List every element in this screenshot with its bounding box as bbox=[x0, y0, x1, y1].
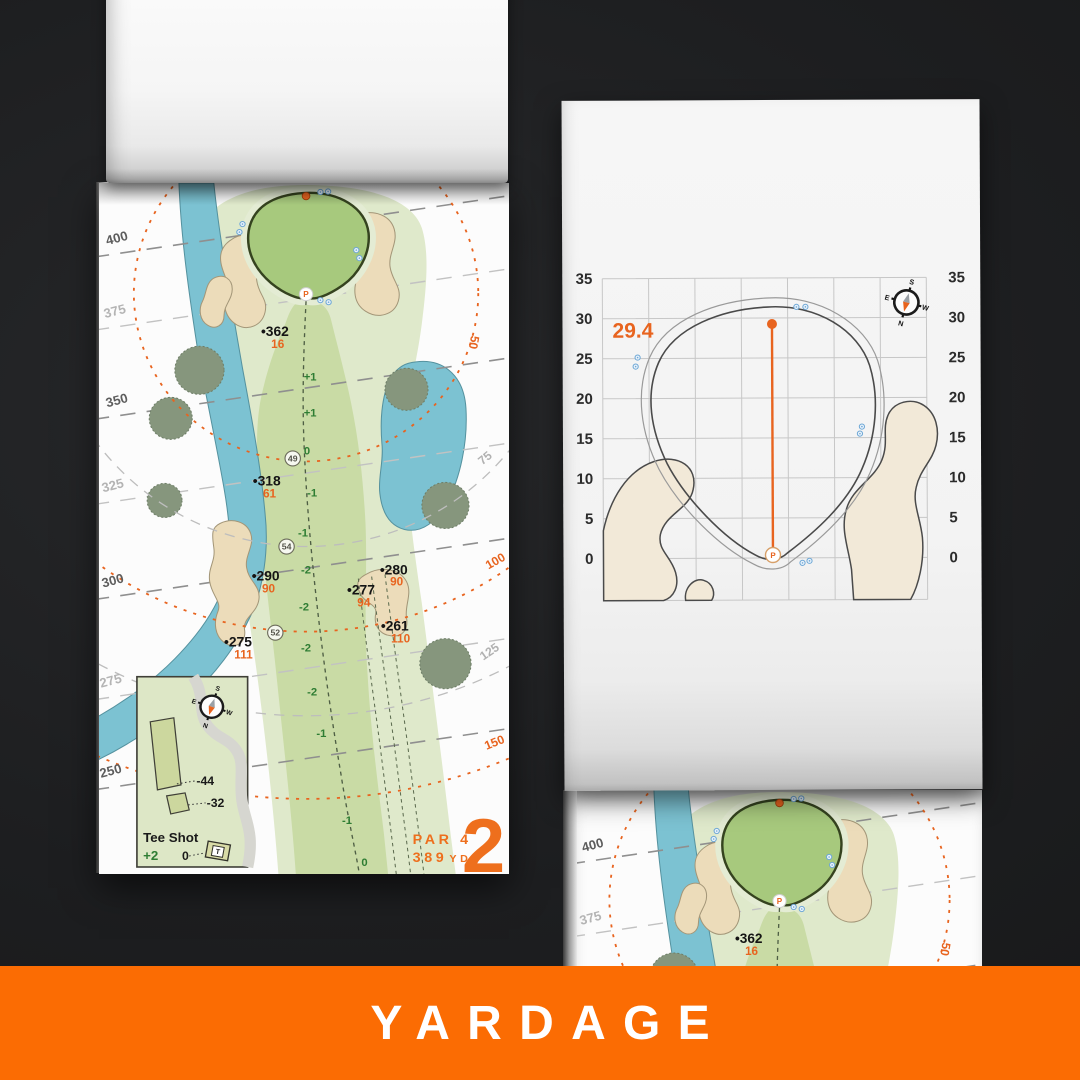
arc-75: 75 bbox=[475, 448, 495, 467]
svg-text:15: 15 bbox=[576, 431, 593, 448]
svg-text:35: 35 bbox=[948, 269, 965, 286]
yardage-book-left: S N W E bbox=[96, 0, 510, 878]
tee-325: 325 bbox=[100, 475, 125, 495]
carry-290: •290 bbox=[252, 569, 280, 584]
tee-250: 250 bbox=[99, 761, 123, 781]
green-chart-svg: P 29.4 35 30 25 20 15 10 bbox=[561, 99, 982, 791]
arc-50: 50 bbox=[466, 335, 482, 351]
green-page-sprinklers bbox=[633, 304, 865, 566]
togreen-90b: 90 bbox=[390, 576, 403, 589]
svg-text:0: 0 bbox=[585, 551, 593, 568]
svg-text:0: 0 bbox=[949, 549, 957, 566]
hole-map-page[interactable]: S N W E bbox=[99, 183, 509, 874]
svg-text:-2: -2 bbox=[299, 602, 309, 614]
carry-362: •362 bbox=[261, 324, 289, 339]
scene: S N W E bbox=[0, 0, 1080, 1080]
tee-375: 375 bbox=[102, 301, 127, 321]
togreen-111: 111 bbox=[234, 649, 253, 662]
tee-275: 275 bbox=[99, 671, 123, 691]
flipped-page-back[interactable] bbox=[106, 0, 508, 183]
svg-text:20: 20 bbox=[576, 391, 593, 408]
axis-left: 35 30 25 20 15 10 5 0 bbox=[576, 271, 594, 568]
svg-text:25: 25 bbox=[576, 351, 593, 368]
inset-title: Tee Shot bbox=[143, 830, 199, 845]
togreen-16: 16 bbox=[271, 338, 285, 351]
arc-125: 125 bbox=[477, 640, 502, 663]
next-hole-map-page[interactable] bbox=[577, 790, 982, 968]
yardage-book-right: P 29.4 35 30 25 20 15 10 bbox=[561, 96, 983, 970]
svg-text:-2: -2 bbox=[307, 687, 317, 699]
svg-text:20: 20 bbox=[949, 389, 966, 406]
svg-text:5: 5 bbox=[585, 511, 593, 528]
width-54: 54 bbox=[282, 542, 292, 552]
tee-box-icon: T bbox=[205, 841, 230, 861]
svg-text:15: 15 bbox=[949, 429, 966, 446]
green-detail-page[interactable]: P 29.4 35 30 25 20 15 10 bbox=[561, 99, 982, 791]
offset-short-label: -32 bbox=[207, 796, 225, 810]
offset-long-label: -44 bbox=[196, 774, 214, 788]
depth-value: 29.4 bbox=[612, 320, 653, 343]
tee-shot-inset: -44 -32 Tee Shot +2 0 T bbox=[137, 677, 250, 867]
svg-text:5: 5 bbox=[949, 509, 957, 526]
svg-text:25: 25 bbox=[949, 349, 966, 366]
carry-275: •275 bbox=[224, 635, 252, 650]
next-hole-map-svg bbox=[577, 790, 982, 968]
pin-dot bbox=[767, 319, 777, 329]
svg-text:10: 10 bbox=[949, 469, 966, 486]
tee-400: 400 bbox=[104, 228, 129, 248]
svg-text:-1: -1 bbox=[316, 728, 326, 740]
book-spine-right bbox=[563, 790, 577, 968]
carry-318: •318 bbox=[253, 474, 281, 489]
inset-zero: 0 bbox=[182, 849, 189, 863]
svg-text:P: P bbox=[303, 290, 309, 299]
svg-text:+1: +1 bbox=[304, 371, 317, 383]
togreen-94: 94 bbox=[357, 597, 371, 610]
green-page-bunkers bbox=[603, 401, 938, 601]
togreen-61: 61 bbox=[263, 488, 277, 501]
hole-artwork: 49 54 52 bbox=[99, 183, 509, 874]
landing-zone-short bbox=[167, 793, 190, 814]
hole-number: 2 bbox=[462, 804, 505, 874]
width-49: 49 bbox=[288, 453, 298, 463]
arc-100: 100 bbox=[483, 550, 508, 572]
togreen-90a: 90 bbox=[262, 583, 275, 596]
putting-green bbox=[248, 193, 369, 299]
carry-277: •277 bbox=[347, 583, 375, 598]
inset-shot-value: +2 bbox=[143, 848, 158, 863]
yardage-banner: YARDAGE bbox=[0, 966, 1080, 1080]
front-of-green-marker: P bbox=[299, 288, 312, 301]
pin-dot bbox=[302, 192, 310, 200]
svg-text:-1: -1 bbox=[342, 815, 352, 827]
arc-150: 150 bbox=[482, 732, 507, 752]
svg-text:-1: -1 bbox=[298, 528, 308, 540]
tee-350: 350 bbox=[104, 390, 129, 410]
svg-text:0: 0 bbox=[361, 857, 367, 869]
width-52: 52 bbox=[270, 628, 280, 638]
svg-text:P: P bbox=[770, 551, 776, 560]
svg-text:-2: -2 bbox=[301, 643, 311, 655]
svg-text:+1: +1 bbox=[304, 407, 317, 419]
svg-text:10: 10 bbox=[576, 471, 593, 488]
svg-text:35: 35 bbox=[576, 271, 593, 288]
svg-text:-1: -1 bbox=[307, 488, 317, 500]
axis-right: 35 30 25 20 15 10 5 0 bbox=[948, 269, 966, 566]
svg-text:-2: -2 bbox=[301, 565, 311, 577]
svg-text:0: 0 bbox=[304, 445, 310, 457]
hole-map-svg: S N W E bbox=[99, 183, 509, 874]
svg-text:30: 30 bbox=[576, 311, 593, 328]
tee-300: 300 bbox=[100, 571, 125, 591]
svg-text:30: 30 bbox=[948, 309, 965, 326]
carry-261: •261 bbox=[381, 619, 409, 634]
togreen-110: 110 bbox=[391, 633, 410, 646]
banner-label: YARDAGE bbox=[353, 996, 727, 1051]
